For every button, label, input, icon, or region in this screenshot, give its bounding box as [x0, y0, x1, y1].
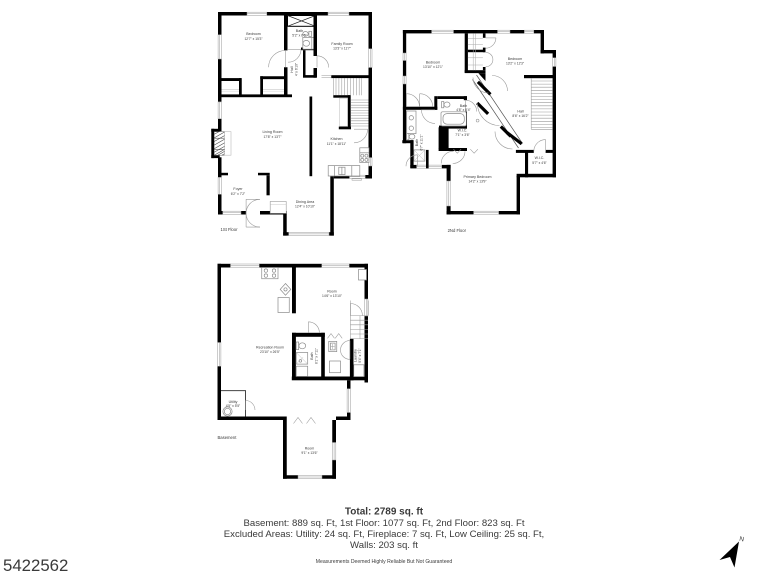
svg-text:Laundry: Laundry — [354, 349, 358, 362]
svg-text:7'1" x 3'6": 7'1" x 3'6" — [455, 133, 470, 137]
svg-text:4'5" x 5'5": 4'5" x 5'5" — [226, 404, 241, 408]
svg-text:Bath: Bath — [310, 352, 314, 359]
svg-text:Primary Bedroom: Primary Bedroom — [464, 175, 492, 179]
svg-text:Foyer: Foyer — [233, 187, 243, 191]
svg-text:W.I.C.: W.I.C. — [535, 156, 545, 160]
svg-text:13'3" x 11'7": 13'3" x 11'7" — [333, 47, 352, 51]
svg-text:Kitchen: Kitchen — [331, 137, 343, 141]
svg-text:2Nd Floor: 2Nd Floor — [448, 228, 467, 233]
svg-text:12'4" x 10'10": 12'4" x 10'10" — [295, 204, 316, 208]
svg-text:23'10" x 26'5": 23'10" x 26'5" — [260, 350, 281, 354]
svg-text:Bedroom: Bedroom — [426, 60, 441, 64]
svg-text:17'8" x 13'7": 17'8" x 13'7" — [263, 135, 282, 139]
svg-text:Measurements Deemed Highly Rel: Measurements Deemed Highly Reliable But … — [316, 559, 453, 565]
svg-text:8'6" x 16'2": 8'6" x 16'2" — [512, 114, 529, 118]
svg-text:Walls: 203 sq. ft: Walls: 203 sq. ft — [350, 540, 418, 551]
svg-text:4' x 6'10": 4' x 6'10" — [295, 62, 299, 76]
svg-text:Living Room: Living Room — [263, 130, 283, 134]
svg-text:9'1" x 13'6": 9'1" x 13'6" — [301, 451, 318, 455]
svg-text:11'1" x 18'11": 11'1" x 18'11" — [327, 142, 347, 146]
svg-text:Dining Area: Dining Area — [296, 200, 315, 204]
svg-text:Recreation Room: Recreation Room — [256, 346, 284, 350]
svg-text:5'7" x 4'6": 5'7" x 4'6" — [532, 161, 547, 165]
svg-text:13'2" x 12'3": 13'2" x 12'3" — [506, 62, 525, 66]
svg-text:Total: 2789 sq. ft: Total: 2789 sq. ft — [345, 507, 424, 518]
svg-text:Family Room: Family Room — [331, 42, 352, 46]
svg-text:5422562: 5422562 — [3, 556, 68, 575]
svg-text:N: N — [739, 536, 745, 544]
svg-text:Bath: Bath — [415, 139, 419, 146]
svg-text:6'7" x 11'1": 6'7" x 11'1" — [419, 134, 423, 151]
svg-text:13'10" x 12'1": 13'10" x 12'1" — [423, 65, 444, 69]
svg-text:Bedroom: Bedroom — [508, 57, 523, 61]
svg-text:5'2" x 6'5": 5'2" x 6'5" — [292, 33, 307, 37]
svg-text:14'6" x 13'10": 14'6" x 13'10" — [322, 294, 343, 298]
svg-text:W.I.C.: W.I.C. — [458, 129, 468, 133]
svg-text:6'2" x 7'2": 6'2" x 7'2" — [231, 192, 246, 196]
svg-text:Bedroom: Bedroom — [246, 32, 261, 36]
svg-text:1St Floor: 1St Floor — [221, 227, 239, 232]
svg-text:Basement: Basement — [218, 435, 238, 440]
svg-text:12'7" x 15'3": 12'7" x 15'3" — [244, 37, 263, 41]
svg-text:8'1" x 7'11": 8'1" x 7'11" — [314, 347, 318, 364]
svg-text:Room: Room — [327, 290, 337, 294]
svg-text:Room: Room — [305, 447, 315, 451]
svg-text:4'8" x 8'4": 4'8" x 8'4" — [456, 108, 471, 112]
svg-text:Hall: Hall — [517, 109, 523, 113]
svg-text:Basement: 889 sq. Ft, 1st Floo: Basement: 889 sq. Ft, 1st Floor: 1077 sq… — [243, 518, 524, 529]
svg-text:14'2" x 13'9": 14'2" x 13'9" — [468, 179, 487, 183]
svg-text:9'4" x 7'1": 9'4" x 7'1" — [358, 347, 362, 362]
svg-text:Excluded Areas: Utility: 24 sq: Excluded Areas: Utility: 24 sq. Ft, Fire… — [224, 529, 544, 540]
svg-text:Hall: Hall — [290, 66, 294, 72]
svg-text:Utility: Utility — [229, 400, 238, 404]
